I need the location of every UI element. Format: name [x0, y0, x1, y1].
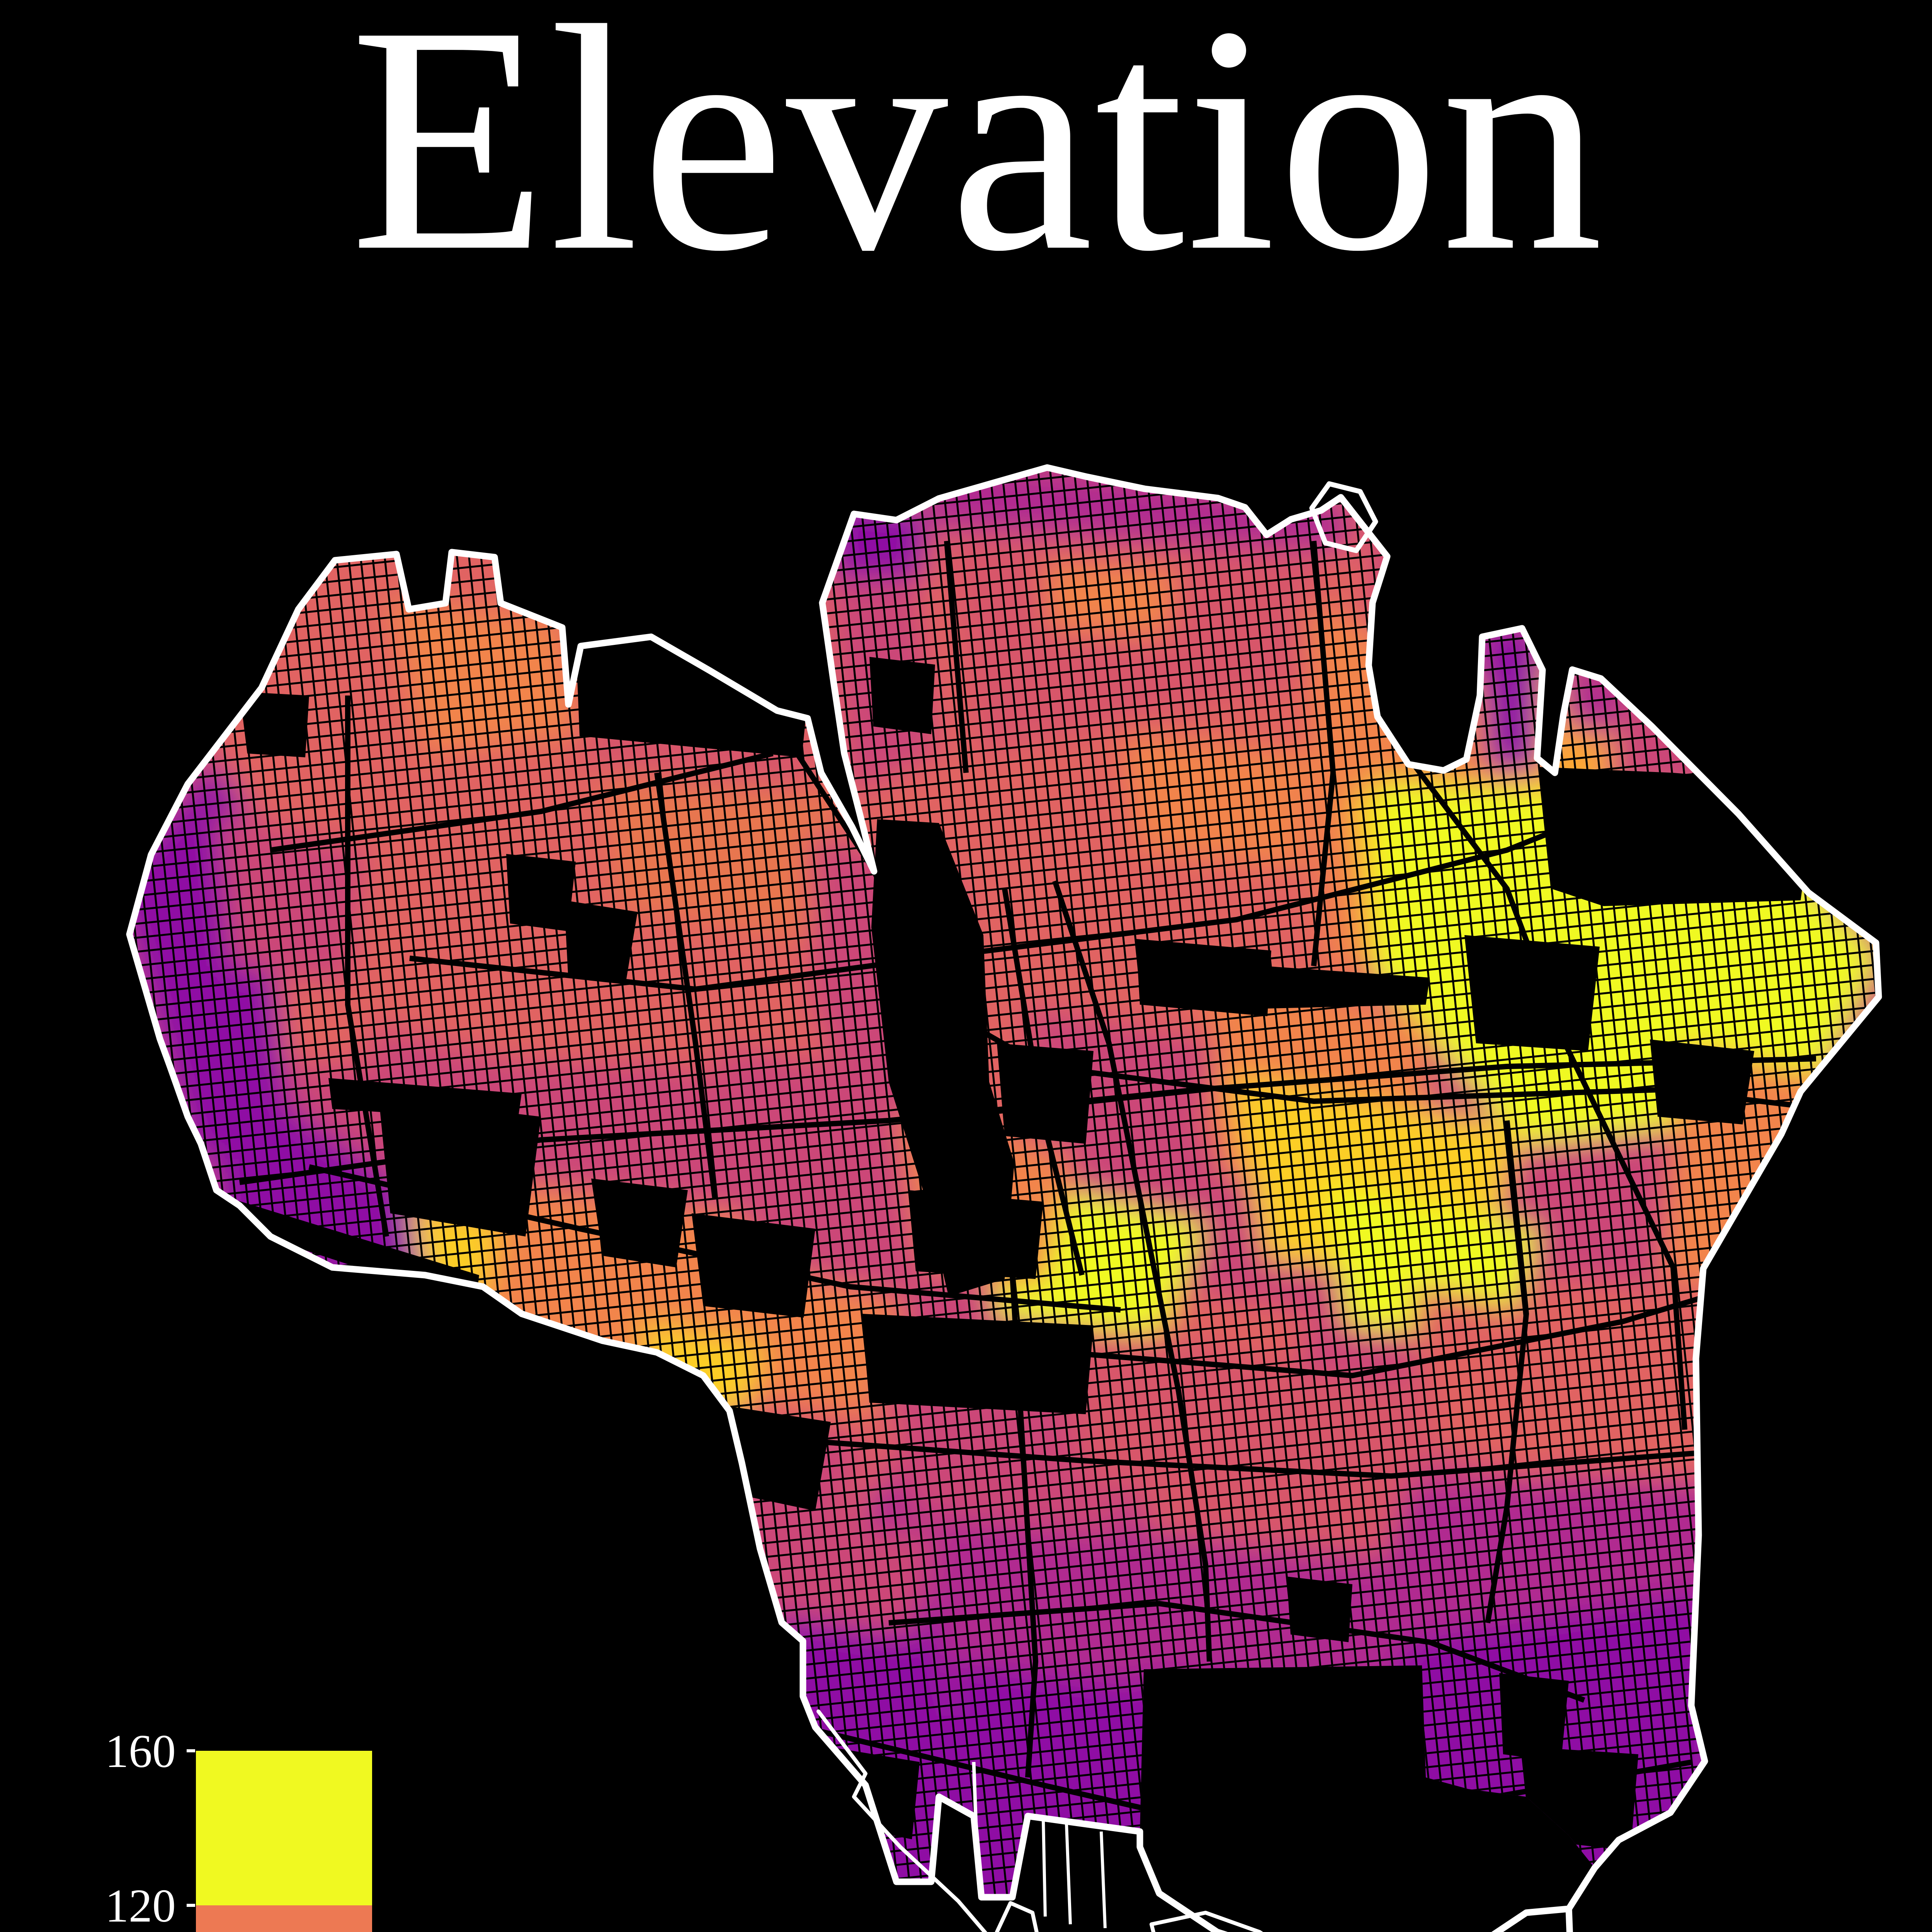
svg-text:Elevation: Elevation [350, 0, 1604, 318]
svg-text:120: 120 [105, 1880, 176, 1932]
svg-text:160: 160 [105, 1725, 176, 1777]
